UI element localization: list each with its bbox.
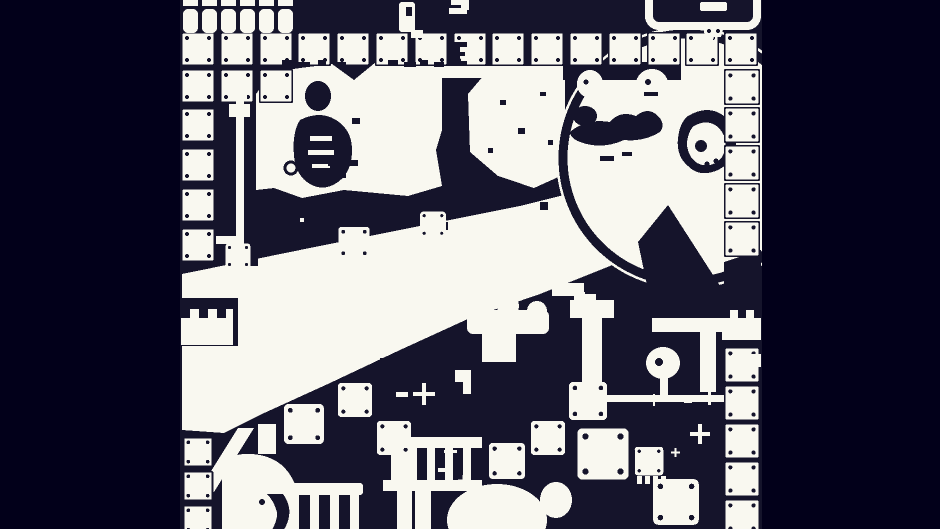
riveted-block [569,382,607,420]
game-screen[interactable] [0,0,940,529]
eye-creature-icon [646,347,680,379]
riveted-block [489,443,525,479]
riveted-block [653,479,699,525]
game-window [0,0,940,529]
hanging-creature-icon [577,70,603,98]
hanging-creature-icon [636,69,668,99]
riveted-block [338,227,369,258]
ammo-charge-icon [278,9,293,33]
riveted-block [284,404,324,444]
riveted-block [420,212,446,238]
ammo-charge-icon [202,9,217,33]
ammo-charge-icon [221,9,236,33]
riveted-block [531,421,565,455]
riveted-block [338,383,372,417]
riveted-block [577,428,628,479]
ammo-charge-icon [240,9,255,33]
riveted-block [635,447,664,476]
ammo-charge-icon [259,9,274,33]
ammo-charge-icon [183,9,198,33]
